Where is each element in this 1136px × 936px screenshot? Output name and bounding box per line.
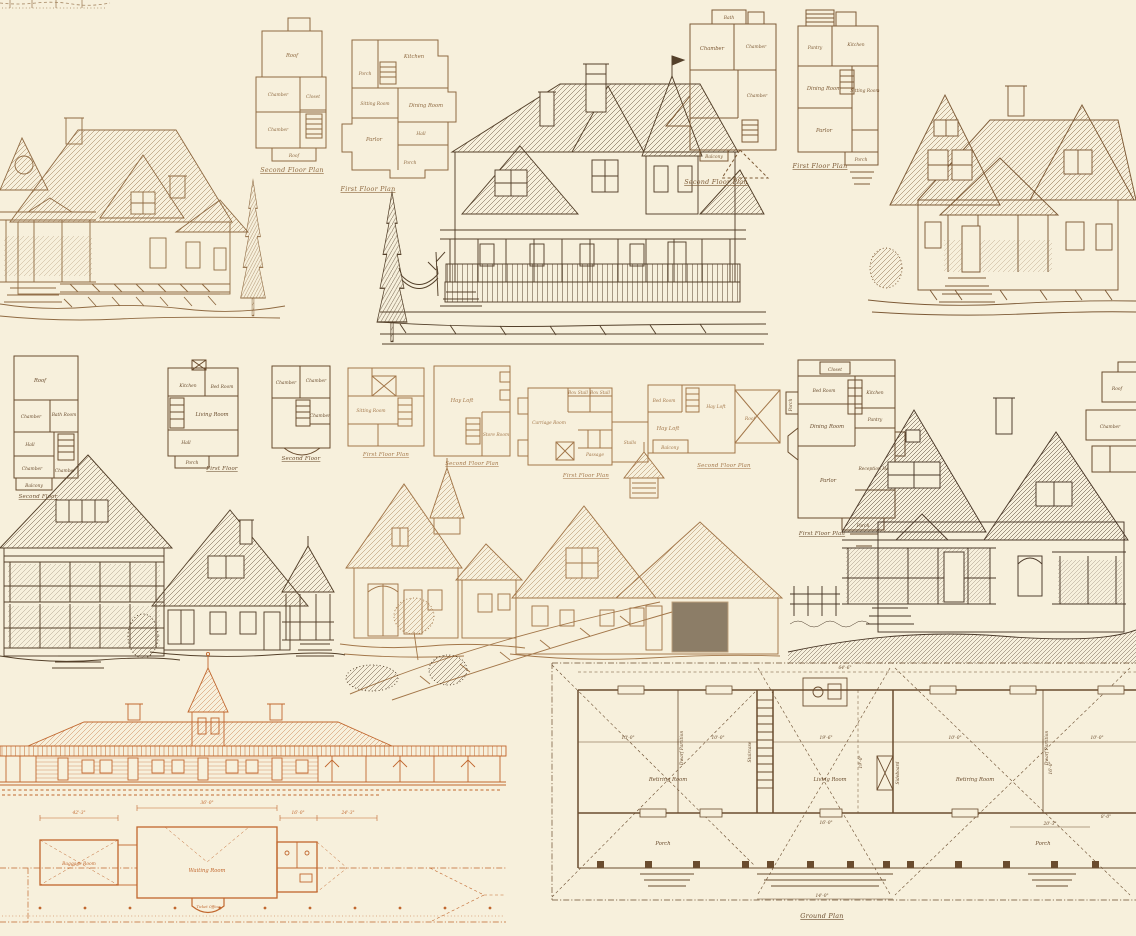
platform-outline [0, 868, 506, 922]
arched-window [1018, 556, 1042, 596]
porch-roof [842, 540, 996, 548]
room-label: Chamber [22, 467, 43, 472]
plan-caption: Second Floor [282, 456, 321, 462]
room-label: Bed Room [812, 389, 836, 394]
pine-tree [241, 180, 266, 316]
chimney [996, 398, 1012, 434]
room-label: Hay Loft [450, 398, 475, 404]
room-label: Retiring Room [648, 777, 687, 783]
gable-left [0, 138, 48, 190]
carriage-opening [672, 602, 728, 652]
room-label: Porch [1034, 841, 1050, 847]
chimney-ornate [586, 64, 606, 112]
room-label: Chamber [700, 46, 725, 52]
dimension-label: 36'-0" [200, 801, 213, 806]
room-label: Roof [285, 53, 299, 59]
depot-floor-plan: 42'-3" 36'-0" 16'-0" 24'-3" Baggage Room… [0, 801, 506, 922]
plan-caption: Ground Plan [800, 912, 843, 920]
stove-nook [803, 678, 847, 706]
porch-railing [446, 264, 740, 282]
plan-first-floor-b: Pantry Kitchen Dining Room Sitting Room … [792, 10, 880, 184]
room-label: Chamber [306, 379, 327, 384]
bush [870, 248, 902, 288]
plan-caption: First Floor [205, 466, 238, 472]
foundation [920, 290, 1118, 300]
room-label: Balcony [24, 484, 43, 489]
room-label: Hall [415, 132, 426, 137]
room-label: Hay Loft [705, 405, 726, 410]
room-label: Parlor [819, 478, 837, 484]
plan-caption: First Floor Plan [562, 473, 609, 479]
ground-line [510, 654, 780, 659]
stable-illustration [350, 442, 782, 700]
front-door [944, 552, 964, 602]
plan-fragment-right-edge: Roof Chamber [1086, 362, 1136, 472]
plan-caption: Second Floor Plan [697, 463, 751, 469]
room-label: Parlor [365, 137, 383, 143]
room-label: Hay Loft [656, 426, 681, 432]
room-label: Roof [33, 378, 47, 384]
note-label: Dwarf Partition [680, 731, 685, 766]
dimension-label: 16'-0" [1049, 761, 1054, 774]
dimension-label: 10'-0" [621, 736, 634, 741]
chimney [540, 92, 554, 126]
steps [4, 288, 62, 302]
room-label: Ticket Office [196, 905, 219, 909]
room-label: Kitchen [865, 391, 883, 396]
turret-cone [430, 468, 464, 518]
dimension-label: 14'-0" [815, 894, 828, 899]
room-label: Chamber [1100, 425, 1121, 430]
room-label: Store Room [483, 433, 509, 438]
room-label: Waiting Room [189, 868, 226, 874]
corner-sketch-fragment [0, 0, 110, 8]
room-label: Pantry [807, 46, 823, 51]
room-label: Porch [185, 461, 199, 466]
dwarf-partition [678, 690, 1043, 813]
room-label: Chamber [747, 94, 768, 99]
plan-caption: First Floor Plan [798, 531, 845, 537]
steps [866, 608, 914, 624]
artist-signature [790, 621, 870, 627]
room-label: Box Stall [589, 391, 611, 396]
plan-second-floor-a: Roof Chamber Closet Chamber Roof Second … [256, 18, 326, 174]
front-door [962, 226, 980, 272]
turret-cottage-illustration [150, 510, 345, 656]
room-label: Bed Room [210, 385, 234, 390]
steps [640, 874, 1076, 886]
plan-caption: Second Floor Plan [445, 461, 499, 467]
roof-right [700, 170, 764, 214]
dimension-label: 16'-0" [819, 821, 832, 826]
room-label: Hall [180, 441, 191, 446]
room-label: Roof [744, 417, 757, 422]
ground-line [0, 304, 285, 311]
roof-vent [128, 704, 140, 720]
street-lines [378, 312, 768, 344]
dimension-label: 20'-3" [1042, 822, 1056, 827]
main-roof [28, 722, 392, 746]
dimension-label: 19'-6" [819, 736, 832, 741]
cupola-roof [624, 452, 664, 478]
bush [128, 614, 158, 658]
room-label: Closet [306, 95, 320, 100]
steps [296, 644, 334, 656]
room-label: Porch [854, 158, 868, 163]
plan-second-floor-d: Chamber Chamber Chamber Second Floor [272, 366, 331, 462]
plan-caption: First Floor Plan [340, 185, 396, 193]
dimension-label: 64'-6" [838, 666, 851, 671]
note-label: Staircase [748, 741, 753, 762]
dimension-label: 19'-0" [859, 755, 864, 768]
lawn [788, 630, 1136, 664]
chimney [240, 520, 252, 544]
steps [52, 656, 104, 668]
lattice-skirt [60, 284, 230, 292]
plan-second-floor-stable-a: Hay Loft Store Room Second Floor Plan [434, 366, 510, 467]
room-label: Chamber [310, 414, 331, 419]
room-label: Chamber [746, 45, 767, 50]
chimney [1008, 86, 1024, 116]
room-label: Sitting Room [360, 102, 389, 107]
room-label: Hall [24, 443, 35, 448]
room-label: Porch [358, 72, 372, 77]
room-label: Kitchen [178, 384, 196, 389]
room-label: Chamber [21, 415, 42, 420]
platform-posts [39, 907, 492, 910]
victorian-mansion-illustration [377, 56, 768, 344]
plan-second-floor-stable-b: Bed Room Hay Loft Hay Loft Balcony Roof … [648, 385, 780, 469]
plan-first-floor-stable-b: Box Stall Box Stall Carriage Room Stalls… [518, 388, 648, 479]
porch-base [445, 282, 740, 302]
room-label: Dining Room [809, 424, 844, 430]
room-label: Sitting Room [356, 409, 385, 414]
waiting-room [137, 827, 277, 898]
room-label: Chamber [268, 93, 289, 98]
room-label: Porch [789, 398, 794, 412]
plan-caption: First Floor Plan [792, 162, 848, 170]
dimension-label: 8'-0" [1101, 815, 1111, 820]
room-label: Pantry [867, 418, 883, 423]
pine-tree [377, 192, 407, 342]
note-label: Dwarf Partition [1045, 731, 1050, 766]
porch-posts [597, 861, 1099, 868]
dim-line [578, 739, 757, 745]
room-label: Living Room [812, 777, 846, 783]
dimension-label: 10'-0" [711, 736, 724, 741]
hammock [399, 266, 438, 289]
room-label: Sitting Room [850, 89, 879, 94]
room-label: Roof [288, 154, 301, 159]
room-label: Kitchen [846, 43, 864, 48]
plan-caption: Second Floor Plan [260, 166, 324, 174]
plan-first-floor-c: Kitchen Bed Room Living Room Hall Porch … [168, 360, 238, 472]
room-label: Stalls [624, 441, 637, 446]
room-label: Chamber [268, 128, 289, 133]
room-label: Bath Room [51, 413, 77, 418]
room-label: Roof [1111, 387, 1124, 392]
room-label: Chamber [276, 381, 297, 386]
porch-roof [440, 230, 746, 239]
room-label: Living Room [194, 412, 228, 418]
room-label: Balcony [704, 155, 723, 160]
plan-first-floor-a: Porch Kitchen Sitting Room Dining Room P… [340, 40, 456, 193]
farmhouse-illustration [868, 86, 1136, 315]
room-label: Dining Room [806, 86, 841, 92]
room-label: Porch [403, 161, 417, 166]
fence [790, 586, 840, 616]
room-label: Baggage Room [61, 862, 96, 867]
shrub-sketches [346, 655, 467, 691]
room-label: Closet [828, 368, 842, 373]
door [646, 606, 662, 650]
turret-roof [282, 546, 334, 592]
room-label: Retiring Room [955, 777, 994, 783]
room-label: Porch [654, 841, 670, 847]
pavilion-ground-plan: 64'-6" Dwarf Partition Dwarf Partition S… [552, 663, 1136, 920]
ground-line [340, 644, 525, 657]
note-label: Sideboard [896, 761, 901, 784]
canopy [0, 746, 506, 756]
house-body [164, 606, 290, 650]
room-label: Bed Room [652, 399, 676, 404]
plan-caption: Second Floor Plan [684, 178, 748, 186]
vintage-architecture-collage: Roof Chamber Closet Chamber Roof Second … [0, 0, 1136, 936]
carriage-house-illustration [340, 458, 525, 657]
plan-first-floor-stable-a: Sitting Room First Floor Plan [348, 368, 424, 458]
roof-vent [270, 704, 282, 720]
front-door [264, 612, 280, 650]
cottage-house-illustration [0, 118, 285, 320]
room-label: Box Stall [567, 391, 589, 396]
dimension-label: 42'-3" [71, 811, 85, 816]
room-label: Dining Room [408, 103, 443, 109]
ground-line [0, 656, 180, 661]
platform-base [0, 782, 506, 785]
room-label: Passage [585, 453, 604, 458]
dimension-label: 16'-0" [291, 811, 304, 816]
plan-caption: First Floor Plan [362, 452, 409, 458]
room-label: Kitchen [403, 54, 424, 60]
dimension-label: 24'-3" [340, 811, 354, 816]
room-label: Carriage Room [532, 421, 566, 426]
wing-roof [456, 544, 522, 580]
room-label: Bath [723, 16, 735, 21]
room-label: Parlor [815, 128, 833, 134]
ground-line [868, 300, 1136, 305]
dimension-label: 10'-0" [1090, 736, 1103, 741]
dimension-label: 10'-0" [948, 736, 961, 741]
staircase [757, 700, 773, 788]
tree-stump [428, 252, 445, 296]
room-label: Balcony [660, 446, 679, 451]
tower-spire [188, 668, 228, 712]
